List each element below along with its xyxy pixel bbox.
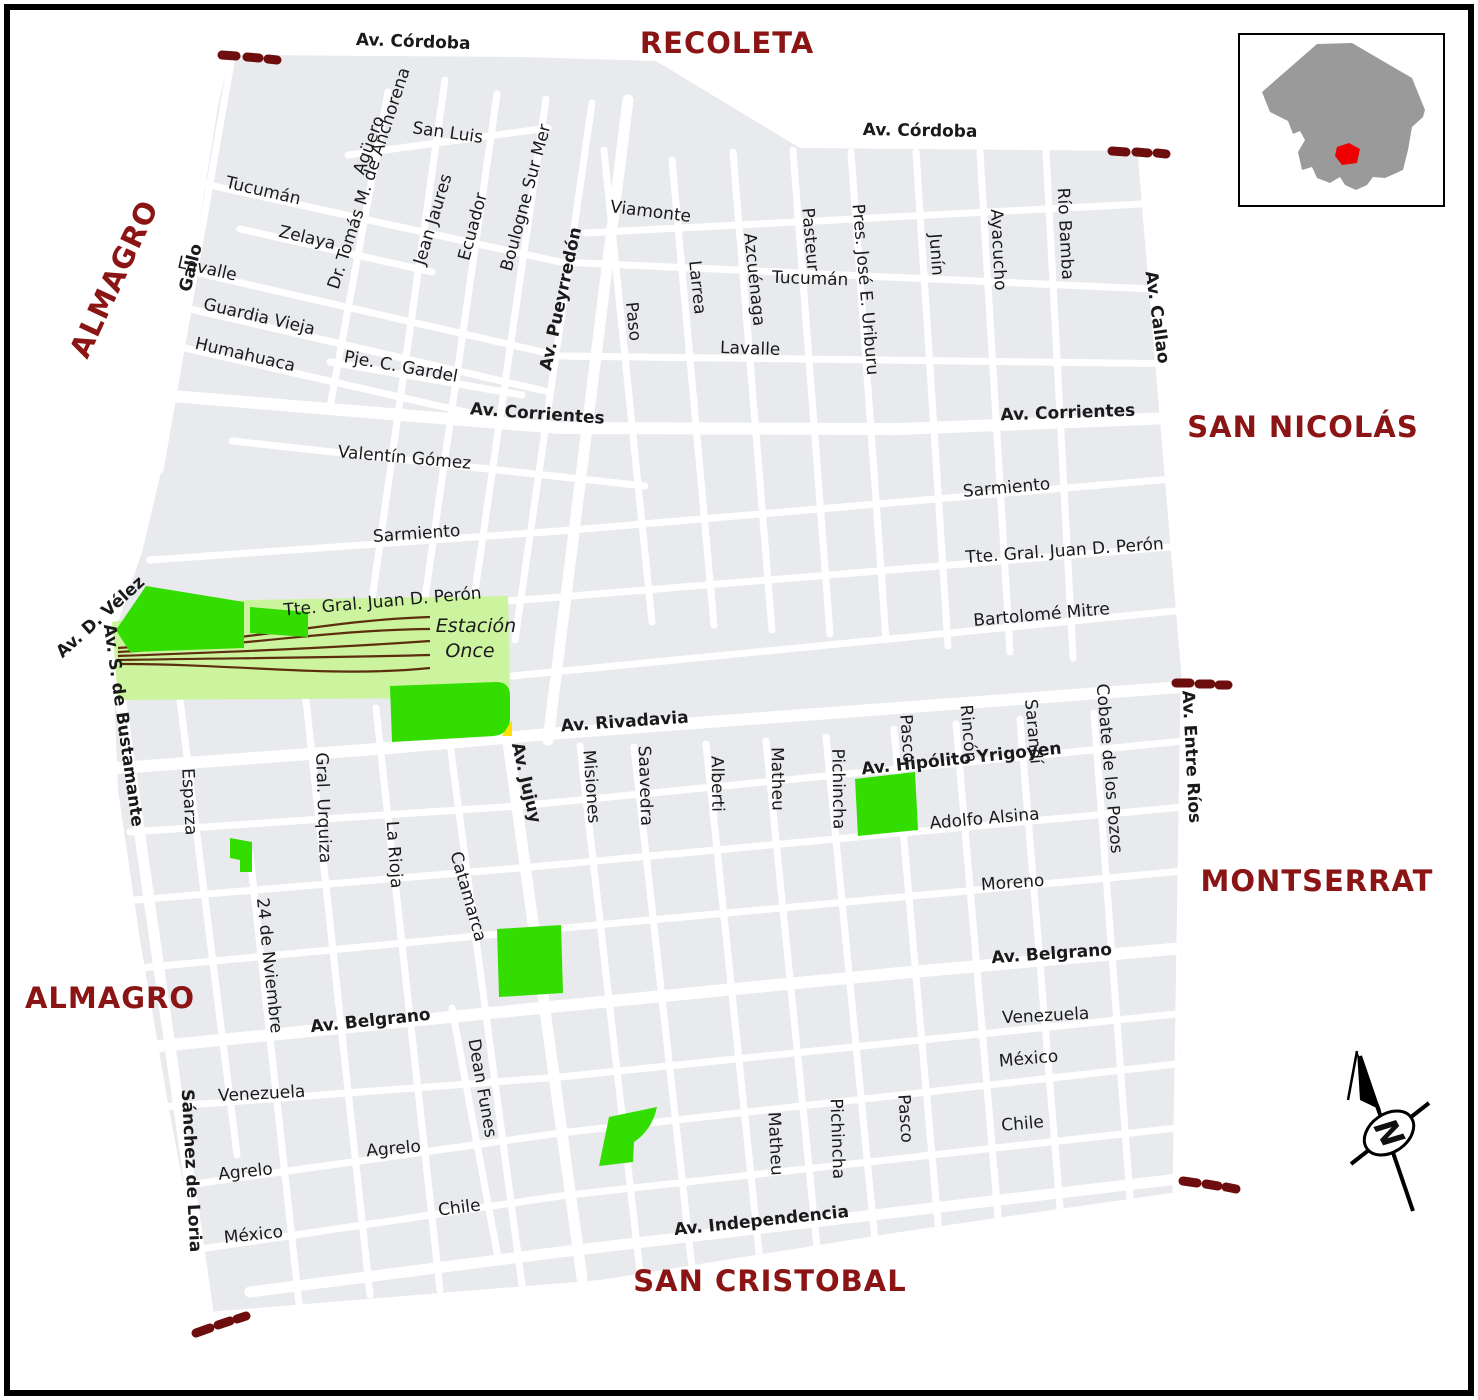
boundary-dash	[268, 59, 277, 60]
street-label: Saavedra	[634, 745, 657, 826]
boundary-dash	[1157, 153, 1166, 154]
street-label: Ayacucho	[986, 208, 1010, 291]
boundary-dash	[222, 55, 236, 56]
boundary-dash	[1136, 152, 1148, 153]
boundary-dash	[237, 1316, 246, 1319]
landmark-label: Estación	[436, 615, 516, 637]
street-label: Av. Córdoba	[356, 30, 471, 54]
street-label: Pichincha	[826, 1098, 849, 1179]
park	[390, 682, 510, 742]
boundary-dash	[1183, 1181, 1197, 1183]
map-svg: RECOLETAALMAGROSAN NICOLÁSMONTSERRATALMA…	[0, 0, 1478, 1400]
street-label: Chile	[1000, 1112, 1044, 1136]
boundary-dash	[196, 1328, 210, 1333]
inset-locator-map	[1239, 34, 1444, 206]
street-label: Pasco	[893, 1094, 916, 1144]
street-label: Av. Córdoba	[863, 120, 978, 142]
neighborhood-label: MONTSERRAT	[1201, 864, 1434, 898]
park	[855, 772, 918, 836]
street-label: Junín	[924, 232, 947, 276]
street-label: Alberti	[707, 756, 728, 812]
street-label: Paso	[621, 301, 645, 342]
street-label: Matheu	[766, 747, 787, 811]
street-label: Gral. Urquiza	[311, 752, 335, 864]
street-label: Esparza	[177, 768, 200, 836]
neighborhood-label: RECOLETA	[640, 26, 814, 60]
neighborhood-label: SAN NICOLÁS	[1187, 410, 1419, 444]
boundary-dash	[1206, 1184, 1218, 1186]
street-label: Pichincha	[827, 748, 848, 829]
boundary-dash	[247, 57, 259, 58]
street-label: Pasco	[895, 714, 918, 764]
boundary-dash	[1112, 151, 1126, 152]
neighborhood-label: ALMAGRO	[25, 981, 195, 1015]
neighborhood-label: SAN CRISTOBAL	[633, 1264, 906, 1298]
landmark-label: Once	[445, 640, 494, 662]
boundary-dash	[218, 1321, 230, 1325]
street-label: Matheu	[763, 1111, 786, 1176]
boundary-dash	[1226, 1187, 1236, 1189]
park	[497, 925, 563, 997]
city-map: RECOLETAALMAGROSAN NICOLÁSMONTSERRATALMA…	[0, 0, 1478, 1400]
street-label: Lavalle	[720, 338, 781, 360]
